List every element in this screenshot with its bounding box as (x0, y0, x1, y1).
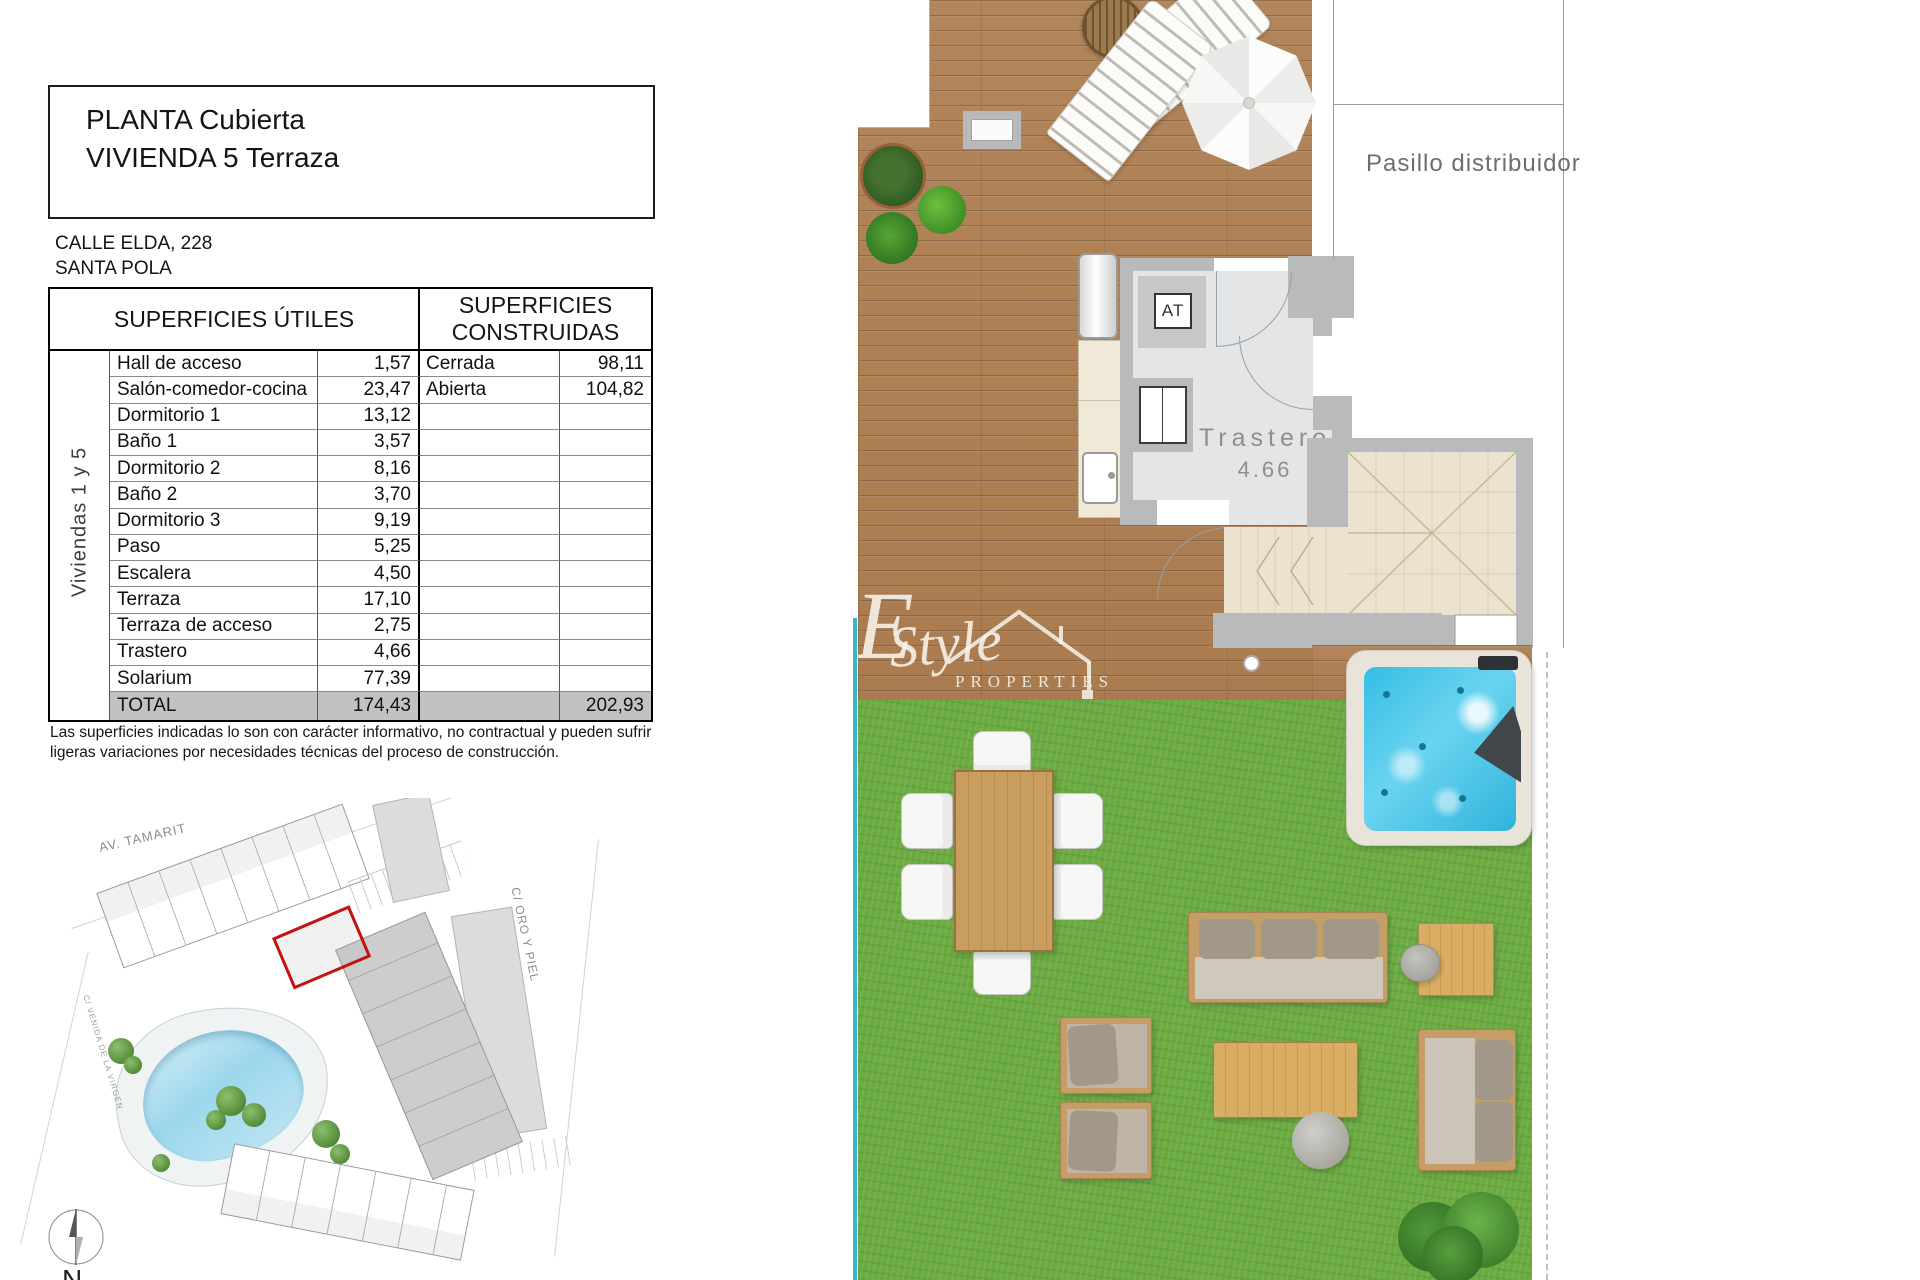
road-line (554, 839, 599, 1257)
plant-pot (918, 186, 966, 234)
sofa-cushion (1475, 1040, 1513, 1100)
dining-table (954, 770, 1054, 952)
compass-icon (45, 1206, 107, 1268)
road-line (20, 952, 88, 1245)
built-value (560, 404, 651, 430)
title-line-2: VIVIENDA 5 Terraza (86, 139, 653, 177)
dining-chair (973, 949, 1031, 995)
tree (206, 1110, 226, 1130)
jacuzzi-jet (1459, 795, 1466, 802)
dining-chair (1051, 864, 1103, 920)
jacuzzi-jet (1381, 789, 1388, 796)
doormat-inner (971, 119, 1013, 141)
row-group-column: Viviendas 1 y 5 (50, 351, 110, 692)
door-opening (1214, 258, 1292, 271)
built-name (420, 561, 560, 587)
table-row: Salón-comedor-cocina23,47Abierta104,82 (110, 377, 651, 403)
areas-table-body: Hall de acceso1,57Cerrada98,11Salón-come… (110, 351, 651, 692)
sofa-seat (1195, 957, 1383, 999)
wall-block (1288, 256, 1354, 318)
built-name (420, 666, 560, 692)
tree (330, 1144, 350, 1164)
room-value: 3,57 (318, 430, 420, 456)
built-name: Abierta (420, 377, 560, 403)
built-value (560, 535, 651, 561)
disclaimer-line-2: ligeras variaciones por necesidades técn… (50, 743, 660, 763)
room-value: 5,25 (318, 535, 420, 561)
garden-sofa (1418, 1029, 1516, 1171)
compass-label: N (62, 1264, 82, 1280)
address: CALLE ELDA, 228 SANTA POLA (55, 231, 212, 281)
boundary-dashed-line (1546, 652, 1548, 1280)
corridor-label: Pasillo distribuidor (1366, 150, 1581, 178)
at-label: AT (1162, 301, 1184, 321)
room-name: Terraza (110, 587, 318, 613)
plant-pot (860, 143, 926, 209)
cabinet-divider (1162, 388, 1163, 442)
room-value: 4,66 (318, 640, 420, 666)
total-row: TOTAL 174,43 202,93 (50, 692, 651, 720)
room-name: Escalera (110, 561, 318, 587)
title-line-1: PLANTA Cubierta (86, 101, 653, 139)
built-value (560, 456, 651, 482)
table-row: Dormitorio 28,16 (110, 456, 651, 482)
room-value: 8,16 (318, 456, 420, 482)
room-name: Dormitorio 1 (110, 404, 318, 430)
table-row: Solarium77,39 (110, 666, 651, 692)
room-name: Baño 1 (110, 430, 318, 456)
room-value: 17,10 (318, 587, 420, 613)
built-name (420, 404, 560, 430)
header-superficies-construidas: SUPERFICIES CONSTRUIDAS (420, 289, 651, 349)
ac-unit (1078, 253, 1118, 339)
table-row: Paso5,25 (110, 535, 651, 561)
sofa-cushion (1199, 919, 1255, 959)
pool-edge-line (853, 618, 857, 1280)
table-row: Escalera4,50 (110, 561, 651, 587)
built-value (560, 509, 651, 535)
sofa-seat (1425, 1038, 1475, 1164)
sofa-cushion (1475, 1102, 1513, 1162)
room-name: Baño 2 (110, 482, 318, 508)
jacuzzi-jet (1383, 691, 1390, 698)
table-row: Hall de acceso1,57Cerrada98,11 (110, 351, 651, 377)
built-value (560, 666, 651, 692)
built-value (560, 640, 651, 666)
floorplan-page: E Style PROPERTIES AT Trastero 4.66 (0, 0, 1920, 1280)
jacuzzi-jet (1457, 687, 1464, 694)
total-built-value: 202,93 (560, 692, 651, 720)
total-built-label (420, 692, 560, 720)
dining-chair (973, 731, 1031, 775)
site-plan: AV. TAMARIT C/ ORO Y PIEL C/ VENIDA DE L… (20, 798, 620, 1280)
sofa-cushion (1261, 919, 1317, 959)
built-value (560, 561, 651, 587)
built-name (420, 640, 560, 666)
room-value: 2,75 (318, 614, 420, 640)
built-name (420, 509, 560, 535)
table-row: Baño 13,57 (110, 430, 651, 456)
room-value: 9,19 (318, 509, 420, 535)
garden-sofa (1188, 912, 1388, 1003)
built-value (560, 614, 651, 640)
table-row: Terraza de acceso2,75 (110, 614, 651, 640)
table-row: Trastero4,66 (110, 640, 651, 666)
built-value (560, 430, 651, 456)
disclaimer: Las superficies indicadas lo son con car… (50, 723, 660, 763)
at-meter-box: AT (1154, 293, 1192, 329)
areas-table: SUPERFICIES ÚTILES SUPERFICIES CONSTRUID… (48, 287, 653, 722)
side-table (1400, 944, 1440, 982)
cabinet (1139, 386, 1187, 444)
built-value (560, 482, 651, 508)
deck-notch (858, 0, 930, 128)
room-name: Dormitorio 3 (110, 509, 318, 535)
jacuzzi (1346, 650, 1532, 846)
header-superficies-utiles: SUPERFICIES ÚTILES (50, 289, 420, 349)
total-row-spacer (50, 692, 110, 720)
wall-lamp (1243, 655, 1260, 672)
room-name: Dormitorio 2 (110, 456, 318, 482)
watermark-subtitle: PROPERTIES (955, 672, 1114, 692)
room-name: Trastero (110, 640, 318, 666)
built-name (420, 587, 560, 613)
tree (152, 1154, 170, 1172)
room-name: Hall de acceso (110, 351, 318, 377)
address-line-1: CALLE ELDA, 228 (55, 231, 212, 256)
built-name (420, 456, 560, 482)
built-name (420, 614, 560, 640)
room-value: 77,39 (318, 666, 420, 692)
built-name (420, 535, 560, 561)
built-name: Cerrada (420, 351, 560, 377)
sofa-cushion (1323, 919, 1379, 959)
room-value: 4,50 (318, 561, 420, 587)
counter-divider (1078, 400, 1122, 401)
armchair-pillow (1067, 1110, 1118, 1172)
built-name (420, 430, 560, 456)
total-useful-value: 174,43 (318, 692, 420, 720)
room-name: Salón-comedor-cocina (110, 377, 318, 403)
disclaimer-line-1: Las superficies indicadas lo son con car… (50, 723, 660, 743)
table-row: Dormitorio 113,12 (110, 404, 651, 430)
row-group-label: Viviendas 1 y 5 (68, 446, 91, 596)
dining-chair (901, 793, 953, 849)
tree (124, 1056, 142, 1074)
tree (242, 1103, 266, 1127)
boundary-line (1333, 0, 1334, 258)
coffee-table (1213, 1042, 1358, 1118)
address-line-2: SANTA POLA (55, 256, 212, 281)
room-name: Solarium (110, 666, 318, 692)
plant-pot (866, 212, 918, 264)
built-name (420, 482, 560, 508)
dining-chair (1051, 793, 1103, 849)
room-value: 23,47 (318, 377, 420, 403)
room-value: 13,12 (318, 404, 420, 430)
armchair-pillow (1067, 1023, 1119, 1086)
built-value: 98,11 (560, 351, 651, 377)
armchair (1060, 1017, 1152, 1094)
plant-foliage (1423, 1226, 1483, 1280)
dining-chair (901, 864, 953, 920)
garden-plant (1398, 1192, 1523, 1280)
room-name: Terraza de acceso (110, 614, 318, 640)
areas-table-header: SUPERFICIES ÚTILES SUPERFICIES CONSTRUID… (50, 289, 651, 351)
jacuzzi-jet (1419, 743, 1426, 750)
title-box: PLANTA Cubierta VIVIENDA 5 Terraza (48, 85, 655, 219)
built-value: 104,82 (560, 377, 651, 403)
room-name: Paso (110, 535, 318, 561)
built-value (560, 587, 651, 613)
table-row: Dormitorio 39,19 (110, 509, 651, 535)
armchair (1060, 1102, 1152, 1179)
total-label: TOTAL (110, 692, 318, 720)
areas-table-content: Viviendas 1 y 5 Hall de acceso1,57Cerrad… (50, 351, 651, 692)
faucet (1108, 472, 1115, 479)
door-opening (1313, 336, 1332, 396)
total-row-cells: TOTAL 174,43 202,93 (110, 692, 651, 720)
stairwell (1213, 438, 1533, 650)
room-value: 1,57 (318, 351, 420, 377)
watermark-logo: E Style PROPERTIES (855, 580, 1100, 705)
boundary-line (1333, 104, 1563, 105)
stone-table (1292, 1112, 1349, 1169)
boundary-line (1563, 0, 1564, 648)
street-label-av-tamarit: AV. TAMARIT (97, 820, 187, 855)
table-row: Baño 23,70 (110, 482, 651, 508)
parasol-cap (1243, 97, 1255, 109)
table-row: Terraza17,10 (110, 587, 651, 613)
room-value: 3,70 (318, 482, 420, 508)
door-leaf (1216, 271, 1217, 347)
jacuzzi-control (1478, 656, 1518, 670)
